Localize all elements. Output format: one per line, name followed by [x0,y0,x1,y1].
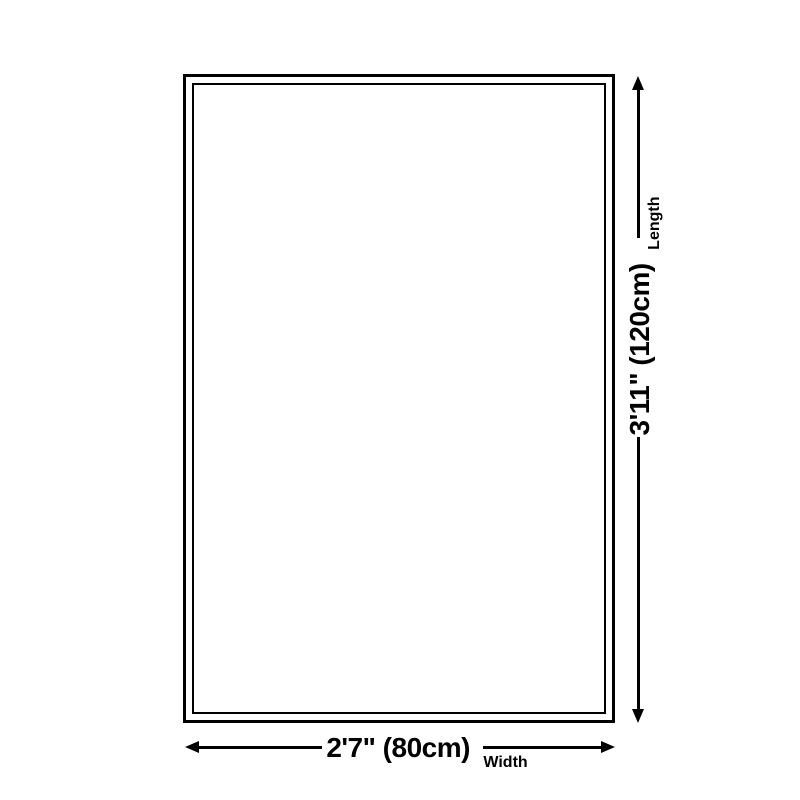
product-outline-inner [192,83,606,714]
length-dimension-label: 3'11" (120cm) Length [624,197,656,436]
length-axis-label: Length [646,197,664,250]
width-value: 2'7" (80cm) [326,732,470,763]
width-dimension-line-left [199,746,322,749]
dimension-diagram-canvas: 3'11" (120cm) Length 2'7" (80cm) Width [0,0,800,800]
length-value: 3'11" (120cm) [624,263,655,435]
arrow-right-icon [601,741,615,753]
length-dimension-line-bottom [637,437,640,709]
arrow-down-icon [632,709,644,723]
width-dimension-line-right [483,746,602,749]
arrow-left-icon [185,741,199,753]
width-axis-label: Width [483,754,527,772]
product-outline-outer [183,74,615,723]
